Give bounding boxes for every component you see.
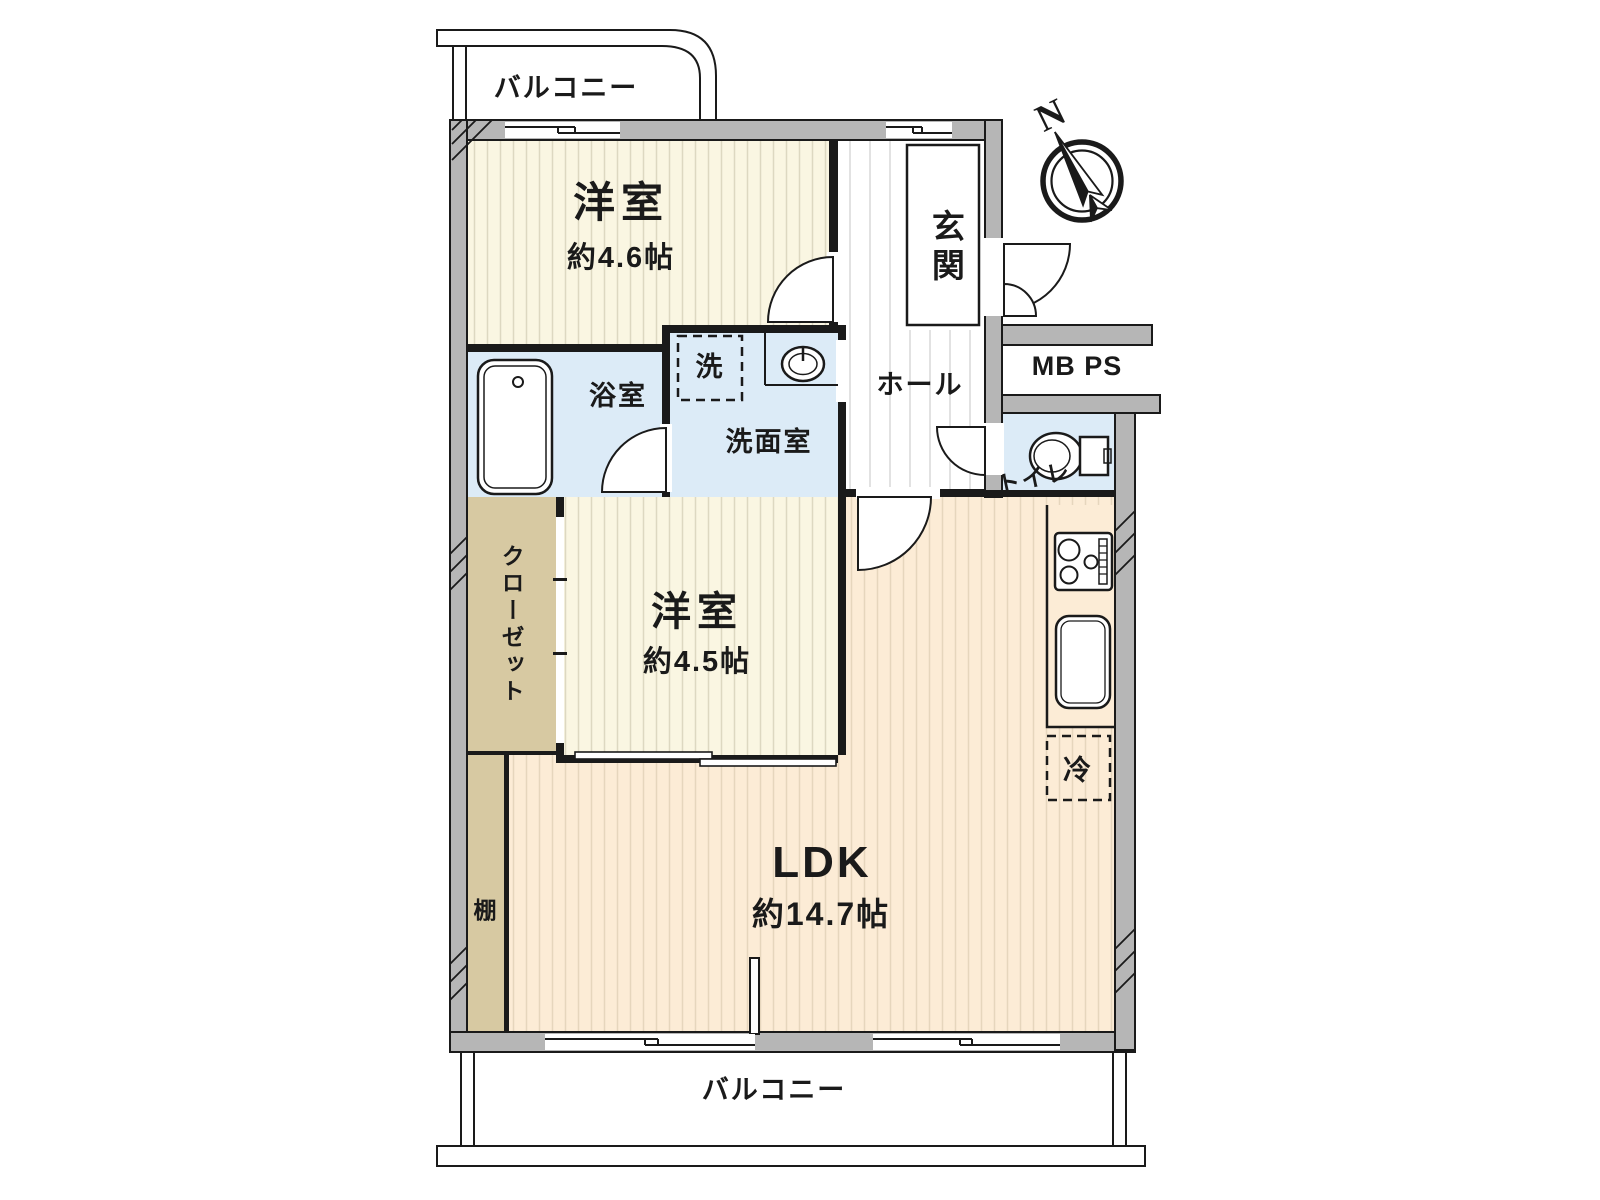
ldk-area: 約14.7帖 xyxy=(752,898,890,932)
wall-kitchen-west xyxy=(838,497,846,755)
western-room-1-label: 洋室 xyxy=(573,181,669,225)
ldk-label: LDK xyxy=(772,840,871,886)
wall-left xyxy=(450,120,467,1050)
laundry-label: 洗 xyxy=(696,353,725,381)
ldk-wall-stub xyxy=(750,958,759,1034)
floor-plan: バルコニー 洋室 約4.6帖 玄関 ホール MB PS 浴室 洗 洗面室 トイレ… xyxy=(0,0,1600,1200)
washroom-door-opening xyxy=(836,340,848,402)
window-ldk-bottom-right xyxy=(873,1034,1060,1050)
balcony-bottom-post-right xyxy=(1113,1052,1126,1148)
stove-icon xyxy=(1055,533,1112,590)
washroom-label: 洗面室 xyxy=(726,428,813,456)
window-hall-top xyxy=(886,122,952,138)
refrigerator-label: 冷 xyxy=(1063,755,1093,784)
compass-icon xyxy=(1043,126,1121,222)
wall-mbps-top xyxy=(1002,325,1152,345)
closet-sliding-tick-2 xyxy=(553,652,567,655)
floor-plan-drawing xyxy=(0,0,1600,1200)
balcony-top-label: バルコニー xyxy=(494,74,638,102)
room2-sliding-panel-2 xyxy=(700,759,836,766)
balcony-bottom-label: バルコニー xyxy=(702,1076,846,1104)
closet-label: クローゼット xyxy=(499,544,523,706)
window-room1-top xyxy=(505,122,620,138)
western-room-1-area: 約4.6帖 xyxy=(567,243,675,273)
balcony-bottom-post-left xyxy=(461,1052,474,1148)
hall-label: ホール xyxy=(877,371,964,399)
bathtub-icon xyxy=(478,360,552,494)
toilet-door-opening xyxy=(983,423,1004,475)
kitchen-sink-icon xyxy=(1056,616,1110,708)
entrance-label: 玄関 xyxy=(928,209,963,287)
western-room-2-label: 洋室 xyxy=(651,591,743,633)
wall-washroom-top xyxy=(662,325,838,333)
closet-sliding-tick-1 xyxy=(553,578,567,581)
room2-sliding-panel-1 xyxy=(575,752,712,759)
shelf-label: 棚 xyxy=(474,898,499,922)
entrance-door-opening xyxy=(983,238,1004,316)
wall-shelf-divider xyxy=(504,755,509,1032)
mbps-label: MB PS xyxy=(1032,352,1123,380)
wall-mbps-bottom xyxy=(1002,395,1160,413)
western-room-2-area: 約4.5帖 xyxy=(643,647,751,677)
window-ldk-bottom-left xyxy=(545,1034,755,1050)
floor-shelf xyxy=(467,755,504,1032)
wall-bath-top xyxy=(467,344,670,352)
bathroom-label: 浴室 xyxy=(589,382,647,410)
balcony-top-post xyxy=(453,46,466,120)
closet-sliding-opening xyxy=(556,517,564,743)
wall-closet-bottom xyxy=(467,751,556,755)
balcony-bottom-rail xyxy=(437,1146,1145,1166)
